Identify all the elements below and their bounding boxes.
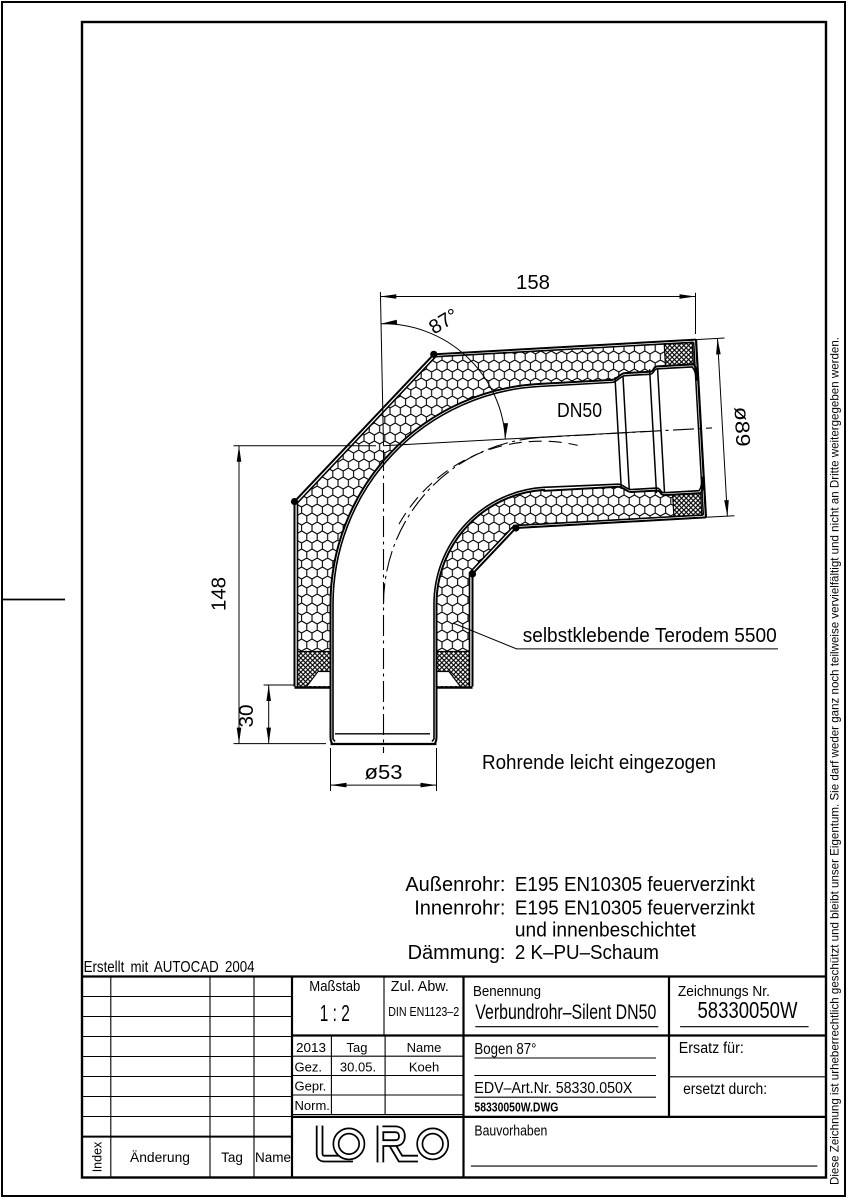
svg-text:Tag: Tag (347, 1040, 368, 1055)
svg-text:Koeh: Koeh (409, 1060, 439, 1075)
svg-text:158: 158 (516, 272, 550, 294)
svg-text:1 : 2: 1 : 2 (320, 1000, 350, 1026)
svg-text:Zul. Abw.: Zul. Abw. (391, 978, 449, 995)
svg-text:Bauvorhaben: Bauvorhaben (474, 1123, 547, 1140)
svg-text:E195 EN10305 feuerverzinkt: E195 EN10305 feuerverzinkt (515, 874, 755, 896)
svg-text:Außenrohr:: Außenrohr: (405, 874, 505, 896)
svg-text:ø53: ø53 (365, 762, 403, 784)
svg-text:Bogen 87°: Bogen 87° (474, 1041, 536, 1058)
svg-text:DIN EN1123–2: DIN EN1123–2 (388, 1004, 459, 1019)
svg-text:Gepr.: Gepr. (295, 1079, 327, 1094)
svg-text:Rohrende leicht eingezogen: Rohrende leicht eingezogen (482, 752, 716, 774)
svg-text:Verbundrohr–Silent DN50: Verbundrohr–Silent DN50 (475, 1001, 656, 1024)
svg-text:58330050W: 58330050W (698, 997, 798, 1023)
svg-text:ø89: ø89 (729, 406, 753, 447)
svg-text:Benennung: Benennung (473, 983, 541, 1000)
svg-text:Erstellt mit AUTOCAD 2004: Erstellt mit AUTOCAD 2004 (84, 959, 255, 976)
svg-text:Maßstab: Maßstab (309, 978, 360, 995)
svg-text:Name: Name (255, 1150, 291, 1165)
svg-text:Name: Name (407, 1040, 442, 1055)
svg-text:58330050W.DWG: 58330050W.DWG (474, 1100, 558, 1115)
svg-text:30: 30 (236, 705, 258, 728)
svg-text:DN50: DN50 (557, 400, 602, 422)
svg-text:2 K–PU–Schaum: 2 K–PU–Schaum (515, 942, 659, 964)
svg-text:Gez.: Gez. (295, 1060, 322, 1075)
svg-text:30.05.: 30.05. (340, 1060, 376, 1075)
svg-text:Tag: Tag (221, 1150, 243, 1165)
svg-text:selbstklebende Terodem 5500: selbstklebende Terodem 5500 (523, 625, 777, 647)
svg-text:Ersatz für:: Ersatz für: (679, 1040, 744, 1057)
svg-text:Innenrohr:: Innenrohr: (414, 898, 505, 920)
svg-text:EDV–Art.Nr. 58330.050X: EDV–Art.Nr. 58330.050X (474, 1080, 633, 1097)
svg-text:Diese Zeichnung ist urheberrec: Diese Zeichnung ist urheberrechtlich ges… (829, 337, 842, 1185)
svg-text:ersetzt durch:: ersetzt durch: (683, 1081, 767, 1098)
svg-text:148: 148 (209, 577, 231, 611)
svg-text:E195 EN10305 feuerverzinkt: E195 EN10305 feuerverzinkt (515, 898, 755, 920)
svg-text:Änderung: Änderung (130, 1150, 190, 1165)
svg-text:Norm.: Norm. (295, 1098, 330, 1113)
svg-text:2013: 2013 (296, 1040, 326, 1055)
svg-text:und innenbeschichtet: und innenbeschichtet (515, 920, 696, 942)
svg-text:Dämmung:: Dämmung: (408, 942, 506, 964)
svg-text:Index: Index (91, 1141, 105, 1172)
